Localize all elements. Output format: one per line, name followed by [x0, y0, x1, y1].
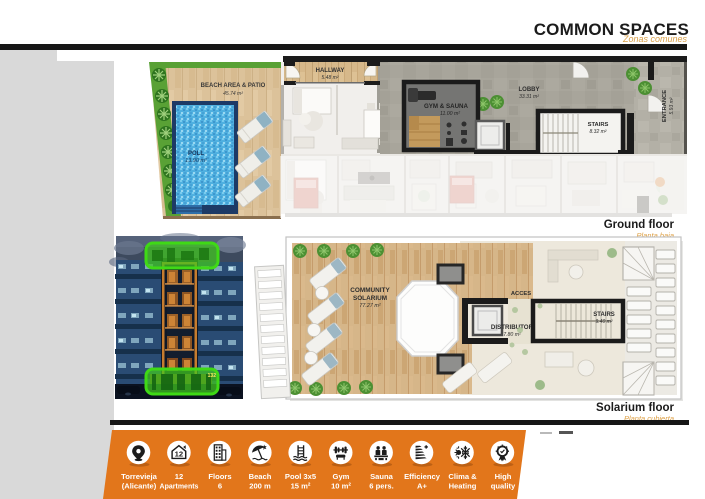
svg-text:10 m²: 10 m²: [331, 482, 351, 491]
svg-text:Heating: Heating: [449, 482, 477, 491]
svg-text:High: High: [495, 472, 512, 481]
svg-text:Sauna: Sauna: [370, 472, 394, 481]
svg-text:A+: A+: [417, 482, 427, 491]
svg-text:Efficiency: Efficiency: [404, 472, 441, 481]
svg-text:Beach: Beach: [249, 472, 272, 481]
svg-text:6: 6: [218, 482, 222, 491]
svg-text:15 m²: 15 m²: [291, 482, 311, 491]
svg-text:Gym: Gym: [333, 472, 350, 481]
svg-text:200 m: 200 m: [249, 482, 271, 491]
svg-text:Floors: Floors: [208, 472, 231, 481]
svg-text:Clima &: Clima &: [448, 472, 477, 481]
svg-text:Torrevieja: Torrevieja: [121, 472, 158, 481]
svg-text:6 pers.: 6 pers.: [369, 482, 393, 491]
svg-text:12: 12: [175, 449, 184, 458]
svg-text:quality: quality: [491, 482, 516, 491]
svg-text:Pool 3x5: Pool 3x5: [285, 472, 317, 481]
svg-text:Apartments: Apartments: [160, 484, 199, 491]
svg-text:12: 12: [175, 472, 183, 481]
svg-text:(Alicante): (Alicante): [122, 482, 157, 491]
